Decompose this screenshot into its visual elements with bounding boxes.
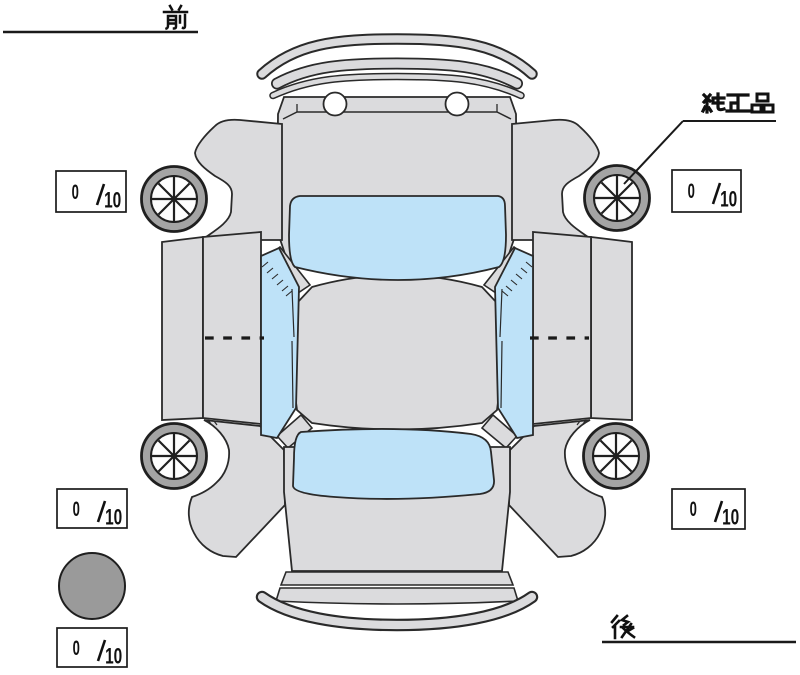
svg-text:10: 10 <box>720 188 737 212</box>
svg-text:10: 10 <box>104 189 121 213</box>
svg-text:0: 0 <box>73 636 80 660</box>
svg-text:10: 10 <box>105 645 122 669</box>
svg-text:0: 0 <box>688 179 695 203</box>
svg-text:10: 10 <box>722 506 739 530</box>
svg-text:10: 10 <box>105 506 122 530</box>
svg-text:0: 0 <box>72 180 79 204</box>
svg-text:0: 0 <box>73 497 80 521</box>
svg-text:0: 0 <box>690 497 697 521</box>
